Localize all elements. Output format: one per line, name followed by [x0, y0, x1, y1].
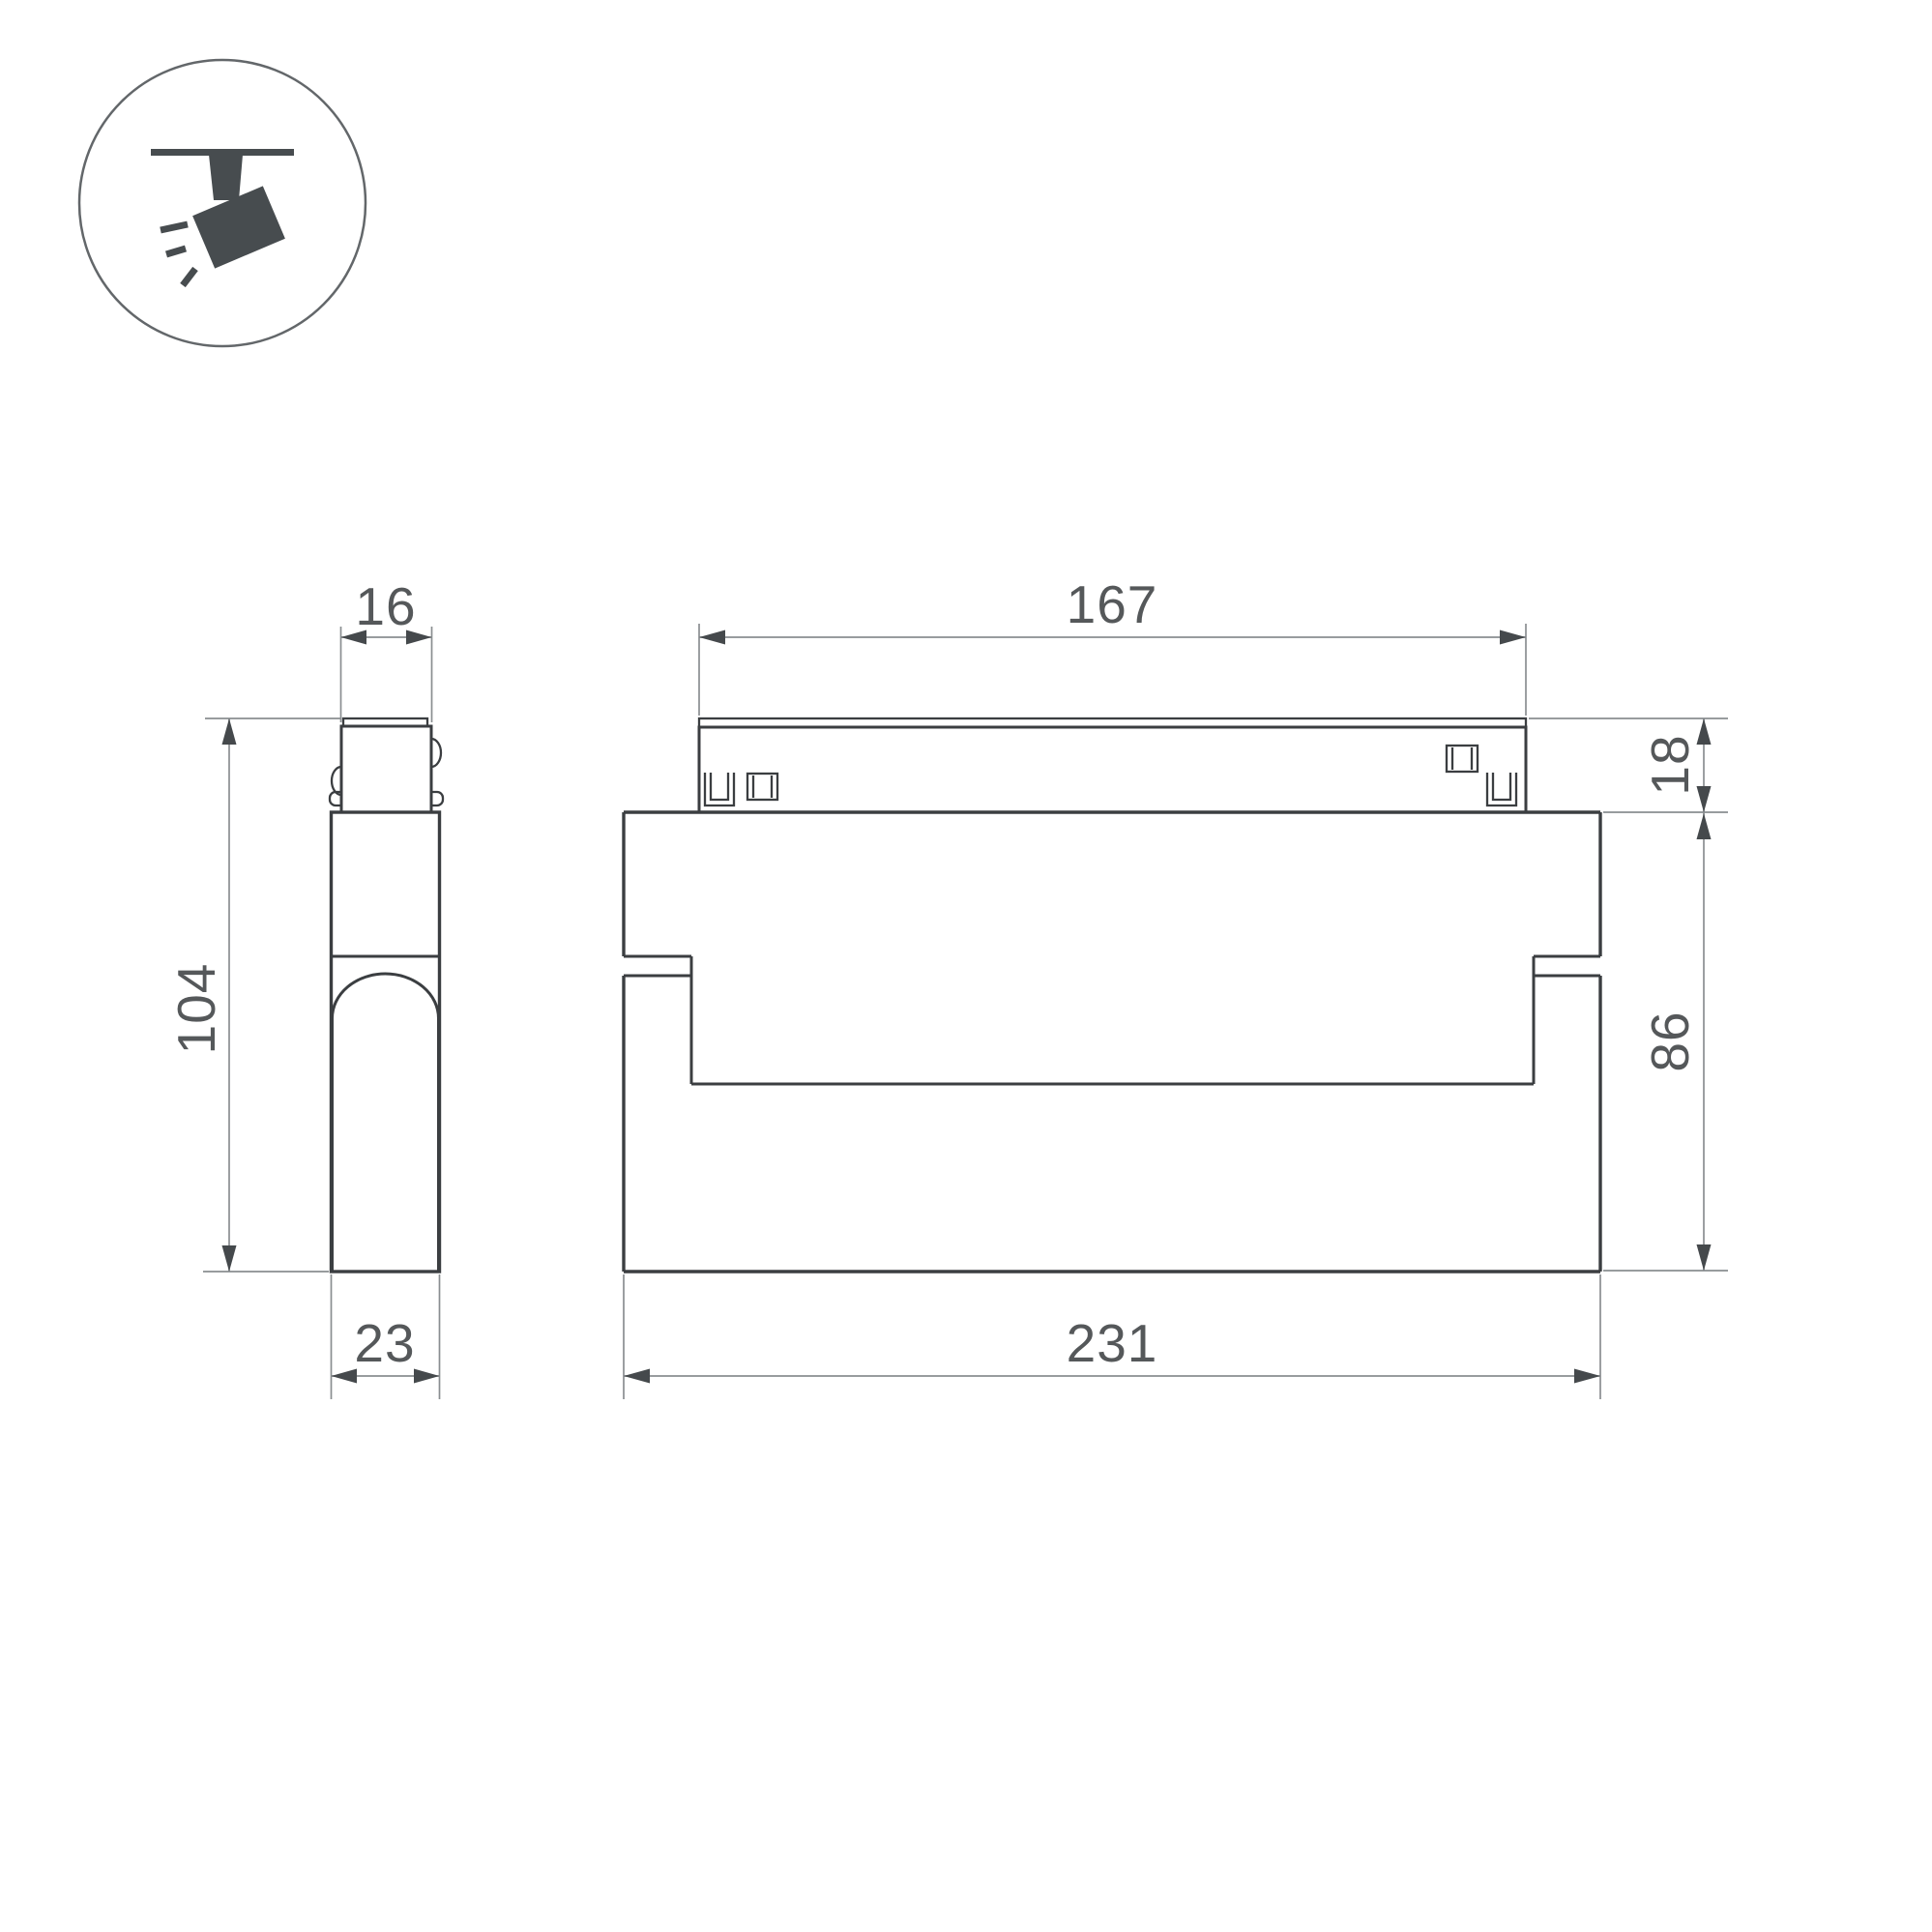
contact-bracket-left-inner	[711, 773, 728, 800]
contact-square-right	[1447, 746, 1478, 772]
dimension-drawing: 16 104 23	[0, 0, 1932, 1932]
dimension-front-body-height: 86	[1603, 812, 1728, 1271]
side-body	[332, 812, 440, 1272]
side-track-adapter	[341, 726, 431, 812]
dimension-label-23: 23	[354, 1313, 415, 1373]
dimension-label-16: 16	[355, 576, 416, 636]
dimension-label-86: 86	[1640, 1010, 1700, 1071]
contact-bracket-right-inner	[1493, 773, 1510, 800]
contact-square-left	[747, 774, 777, 800]
dimension-side-depth: 23	[332, 1274, 440, 1399]
dimension-label-104: 104	[166, 963, 226, 1055]
front-view	[624, 718, 1600, 1272]
arrowhead-left	[624, 1369, 650, 1384]
arrowhead-left	[332, 1369, 358, 1384]
front-slot-lines	[624, 956, 1600, 976]
contact-square-right-inner	[1452, 747, 1472, 770]
front-head-recess	[691, 956, 1534, 1084]
icon-circle	[79, 60, 366, 346]
arrowhead-down	[1697, 1244, 1712, 1271]
dimension-label-231: 231	[1067, 1313, 1158, 1373]
side-view	[330, 718, 443, 1272]
arrowhead-right	[1500, 630, 1526, 645]
dimension-label-167: 167	[1067, 574, 1158, 634]
icon-stem	[209, 155, 243, 200]
icon-ceiling-line	[151, 149, 294, 156]
dimension-front-total-width: 231	[624, 1274, 1600, 1399]
dimension-front-track-height: 18	[1529, 718, 1728, 812]
front-track-adapter	[699, 727, 1526, 812]
side-hinge-arch	[333, 974, 439, 1272]
arrowhead-down	[222, 1245, 237, 1272]
contact-square-left-inner	[753, 776, 772, 798]
arrowhead-up	[222, 718, 237, 745]
side-hook-right	[431, 792, 443, 805]
front-body	[624, 812, 1600, 1272]
arrowhead-right	[1574, 1369, 1600, 1384]
dimension-label-18: 18	[1640, 734, 1700, 795]
diagram-canvas: 16 104 23	[0, 0, 1932, 1932]
arrowhead-up	[1697, 813, 1712, 839]
dimension-side-width-top: 16	[341, 576, 432, 722]
arrowhead-left	[699, 630, 725, 645]
arrowhead-right	[414, 1369, 440, 1384]
dimension-front-track-width: 167	[699, 574, 1526, 716]
track-spotlight-icon	[79, 60, 366, 346]
dimension-side-height: 104	[166, 718, 340, 1272]
